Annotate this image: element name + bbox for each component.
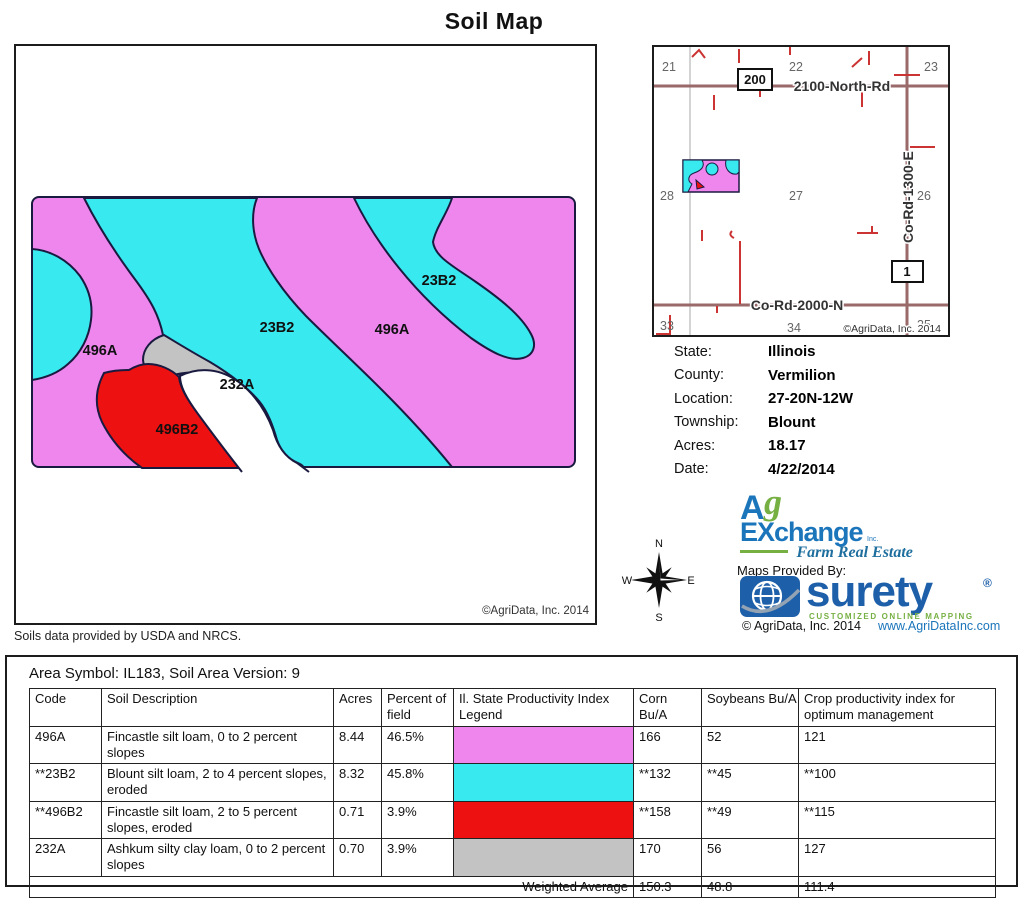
agexchange-logo-word: EXchange xyxy=(740,517,863,547)
col-header-description: Soil Description xyxy=(102,689,334,727)
soil-label-496a-mid: 496A xyxy=(375,322,410,338)
soil-map-frame: 496A 23B2 496A 23B2 232A 496B2 ©AgriData… xyxy=(14,44,597,625)
cell-corn: **132 xyxy=(634,764,702,802)
info-row-county: County: Vermilion xyxy=(674,364,944,388)
compass-n: N xyxy=(655,538,663,550)
surety-wordmark: surety xyxy=(806,567,932,617)
section-27: 27 xyxy=(789,189,803,203)
cell-corn: 170 xyxy=(634,839,702,877)
highway-marker-1: 1 xyxy=(892,261,923,282)
svg-text:1: 1 xyxy=(903,264,910,279)
weighted-corn: 150.3 xyxy=(634,876,702,897)
col-header-soybeans: Soybeans Bu/A xyxy=(702,689,799,727)
cell-cpi: 121 xyxy=(799,726,996,764)
section-22: 22 xyxy=(789,60,803,74)
weighted-average-label: Weighted Average xyxy=(30,876,634,897)
legend-swatch-magenta xyxy=(454,726,634,764)
info-label: County: xyxy=(674,367,768,383)
col-header-percent: Percent of field xyxy=(382,689,454,727)
legend-swatch-cyan xyxy=(454,764,634,802)
weighted-average-row: Weighted Average 150.3 48.8 111.4 xyxy=(30,876,996,897)
registered-mark: ® xyxy=(983,576,992,590)
col-header-code: Code xyxy=(30,689,102,727)
property-info-panel: State: Illinois County: Vermilion Locati… xyxy=(674,340,944,481)
table-row-23b2: **23B2 Blount silt loam, 2 to 4 percent … xyxy=(30,764,996,802)
cell-acres: 0.70 xyxy=(334,839,382,877)
info-label: Date: xyxy=(674,461,768,477)
cell-description: Fincastle silt loam, 0 to 2 percent slop… xyxy=(102,726,334,764)
cell-code: 496A xyxy=(30,726,102,764)
soil-map-canvas: 496A 23B2 496A 23B2 232A 496B2 ©AgriData… xyxy=(16,46,595,623)
cell-code: 232A xyxy=(30,839,102,877)
col-header-corn: Corn Bu/A xyxy=(634,689,702,727)
weighted-cpi: 111.4 xyxy=(799,876,996,897)
info-row-acres: Acres: 18.17 xyxy=(674,434,944,458)
locator-canvas: 200 1 2100-North-Rd Co-Rd-2000-N Co-Rd-1… xyxy=(654,47,948,335)
cell-cpi: 127 xyxy=(799,839,996,877)
info-row-date: Date: 4/22/2014 xyxy=(674,458,944,482)
cell-description: Blount silt loam, 2 to 4 percent slopes,… xyxy=(102,764,334,802)
soil-label-496b2: 496B2 xyxy=(156,422,199,438)
section-21: 21 xyxy=(662,60,676,74)
cell-percent: 3.9% xyxy=(382,839,454,877)
cell-percent: 3.9% xyxy=(382,801,454,839)
agexchange-green-rule xyxy=(740,550,788,553)
legend-swatch-gray xyxy=(454,839,634,877)
section-33: 33 xyxy=(660,319,674,333)
info-label: Township: xyxy=(674,414,768,430)
cell-corn: 166 xyxy=(634,726,702,764)
agexchange-logo: A g EXchange Inc. Farm Real Estate xyxy=(738,487,938,562)
cell-corn: **158 xyxy=(634,801,702,839)
info-label: Acres: xyxy=(674,438,768,454)
legend-swatch-red xyxy=(454,801,634,839)
info-value: Illinois xyxy=(768,343,816,360)
soil-map-report-page: Soil Map 496A 23B2 496A 23B2 232A 496B2 xyxy=(0,0,1024,913)
soil-table-section: Area Symbol: IL183, Soil Area Version: 9… xyxy=(5,655,1018,887)
soils-data-note: Soils data provided by USDA and NRCS. xyxy=(14,629,241,643)
cell-acres: 0.71 xyxy=(334,801,382,839)
cell-percent: 45.8% xyxy=(382,764,454,802)
section-26: 26 xyxy=(917,189,931,203)
cell-cpi: **100 xyxy=(799,764,996,802)
surety-globe-icon xyxy=(740,576,802,618)
cell-cpi: **115 xyxy=(799,801,996,839)
cell-code: **496B2 xyxy=(30,801,102,839)
info-label: State: xyxy=(674,344,768,360)
info-value: Blount xyxy=(768,414,815,431)
surety-logo: surety ® CUSTOMIZED ONLINE MAPPING xyxy=(740,576,1020,620)
cell-soybeans: **45 xyxy=(702,764,799,802)
compass-w: W xyxy=(622,575,633,587)
locator-copyright: ©AgriData, Inc. 2014 xyxy=(843,323,941,335)
col-header-cpi: Crop productivity index for optimum mana… xyxy=(799,689,996,727)
info-value: 4/22/2014 xyxy=(768,461,835,478)
cell-percent: 46.5% xyxy=(382,726,454,764)
cell-description: Fincastle silt loam, 2 to 5 percent slop… xyxy=(102,801,334,839)
cell-soybeans: 56 xyxy=(702,839,799,877)
table-row-232a: 232A Ashkum silty clay loam, 0 to 2 perc… xyxy=(30,839,996,877)
road-label-co-rd-1300: Co-Rd-1300-E xyxy=(900,151,916,243)
compass-e: E xyxy=(687,575,694,587)
agridata-website: www.AgriDataInc.com xyxy=(878,619,1000,633)
agridata-copyright: © AgriData, Inc. 2014 xyxy=(742,619,861,633)
soil-label-23b2-center: 23B2 xyxy=(260,320,295,336)
cell-acres: 8.32 xyxy=(334,764,382,802)
road-label-co-rd-2000: Co-Rd-2000-N xyxy=(751,297,844,313)
cell-description: Ashkum silty clay loam, 0 to 2 percent s… xyxy=(102,839,334,877)
soil-label-232a: 232A xyxy=(220,377,255,393)
page-title: Soil Map xyxy=(445,8,544,35)
soil-table: Code Soil Description Acres Percent of f… xyxy=(29,688,996,898)
weighted-soybeans: 48.8 xyxy=(702,876,799,897)
info-value: Vermilion xyxy=(768,367,836,384)
svg-text:200: 200 xyxy=(744,72,766,87)
field-thumbnail xyxy=(683,160,739,192)
map-copyright: ©AgriData, Inc. 2014 xyxy=(482,605,590,617)
cell-soybeans: **49 xyxy=(702,801,799,839)
info-row-state: State: Illinois xyxy=(674,340,944,364)
table-header-row: Code Soil Description Acres Percent of f… xyxy=(30,689,996,727)
soil-label-23b2-topright: 23B2 xyxy=(422,273,457,289)
cell-acres: 8.44 xyxy=(334,726,382,764)
agridata-credit-row: © AgriData, Inc. 2014 www.AgriDataInc.co… xyxy=(742,619,1012,633)
section-28: 28 xyxy=(660,189,674,203)
info-row-location: Location: 27-20N-12W xyxy=(674,387,944,411)
col-header-acres: Acres xyxy=(334,689,382,727)
cell-code: **23B2 xyxy=(30,764,102,802)
locator-map: 200 1 2100-North-Rd Co-Rd-2000-N Co-Rd-1… xyxy=(652,45,950,337)
compass-s: S xyxy=(655,612,662,624)
section-34: 34 xyxy=(787,321,801,335)
soil-label-496a-left: 496A xyxy=(83,343,118,359)
area-symbol-line: Area Symbol: IL183, Soil Area Version: 9 xyxy=(29,665,300,682)
cell-soybeans: 52 xyxy=(702,726,799,764)
info-row-township: Township: Blount xyxy=(674,411,944,435)
info-value: 18.17 xyxy=(768,437,806,454)
road-label-2100-north: 2100-North-Rd xyxy=(794,78,890,94)
table-row-496a: 496A Fincastle silt loam, 0 to 2 percent… xyxy=(30,726,996,764)
table-row-496b2: **496B2 Fincastle silt loam, 2 to 5 perc… xyxy=(30,801,996,839)
highway-marker-200: 200 xyxy=(738,69,772,90)
section-23: 23 xyxy=(924,60,938,74)
agexchange-logo-inc: Inc. xyxy=(867,536,878,543)
info-label: Location: xyxy=(674,391,768,407)
col-header-legend: Il. State Productivity Index Legend xyxy=(454,689,634,727)
info-value: 27-20N-12W xyxy=(768,390,853,407)
compass-rose: N S W E xyxy=(620,534,698,629)
agexchange-tagline: Farm Real Estate xyxy=(796,544,912,561)
